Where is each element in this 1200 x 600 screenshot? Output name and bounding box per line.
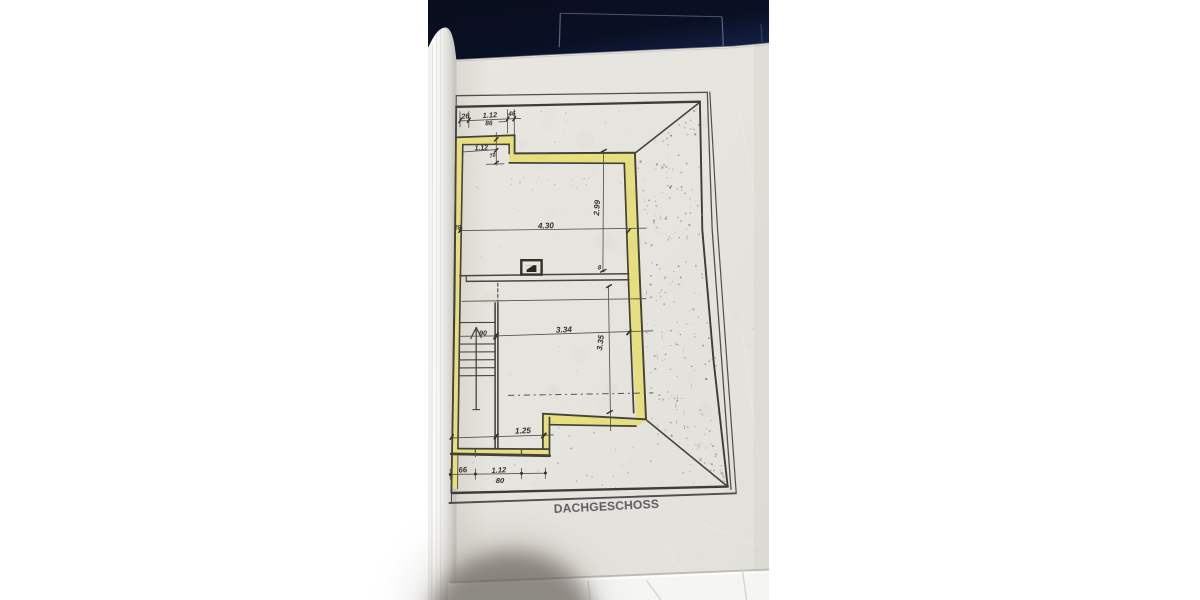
svg-text:4.30: 4.30	[537, 221, 555, 231]
svg-text:1.12: 1.12	[482, 110, 498, 120]
svg-text:26: 26	[460, 111, 470, 121]
svg-text:2.99: 2.99	[592, 199, 602, 217]
svg-text:46: 46	[507, 111, 516, 118]
svg-text:66: 66	[458, 465, 468, 475]
svg-text:90: 90	[479, 330, 487, 337]
svg-text:3.34: 3.34	[556, 325, 573, 335]
svg-text:1.25: 1.25	[515, 426, 532, 436]
svg-text:28: 28	[453, 225, 461, 231]
svg-text:1.12: 1.12	[474, 144, 488, 152]
svg-text:8: 8	[598, 264, 602, 271]
